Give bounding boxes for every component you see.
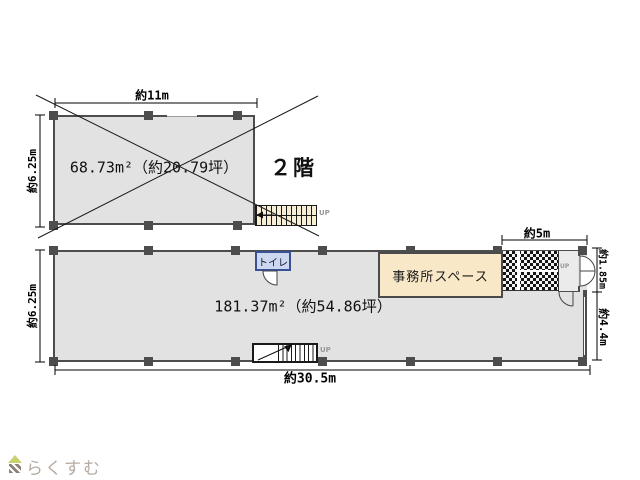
floor2-height-dimension: 約6.25m [24, 149, 40, 193]
entrance-vestibule [558, 251, 578, 291]
column-marker [144, 357, 153, 366]
stairs-mid-line [256, 215, 316, 216]
column-marker [231, 246, 240, 255]
right-bottom-dimension: 約4.4m [596, 308, 612, 346]
floor2-stairs [255, 205, 317, 226]
window-gap [167, 114, 197, 117]
stairwell-hatch [503, 251, 558, 291]
toilet-room: トイレ [255, 251, 291, 271]
column-marker [318, 357, 327, 366]
column-marker [49, 357, 58, 366]
right-top-dimension: 約1.85m [597, 249, 612, 289]
floor1-stairs [252, 343, 318, 363]
floor2-width-dimension: 約11m [135, 87, 169, 104]
floor2-stairs-up-label: UP [319, 209, 330, 217]
window-line [584, 297, 585, 355]
house-roof-icon [8, 455, 22, 463]
hatch-divider [520, 270, 558, 272]
entrance-width-dimension: 約5m [524, 225, 550, 242]
entrance-up-label: UP [560, 263, 569, 270]
column-marker [493, 357, 502, 366]
site-logo: らくすむ [8, 454, 168, 476]
column-marker [231, 357, 240, 366]
column-marker [144, 111, 153, 120]
column-marker [49, 221, 58, 230]
logo-text: らくすむ [26, 454, 102, 479]
column-marker [49, 111, 58, 120]
floor1-width-dimension: 約30.5m [284, 368, 336, 387]
floorplan-canvas: UP 68.73m²（約20.79坪） ２階 約11m 約6.25m トイレ 事… [0, 0, 640, 480]
office-space: 事務所スペース [378, 252, 503, 298]
house-body-icon [9, 464, 21, 473]
floor1-height-dimension: 約6.25m [24, 284, 40, 328]
floor1-stairs-up-label: UP [320, 346, 331, 354]
floor2-area-label: 68.73m²（約20.79坪） [70, 157, 238, 178]
column-marker [406, 357, 415, 366]
column-marker [144, 246, 153, 255]
column-marker [233, 221, 242, 230]
toilet-label: トイレ [258, 254, 288, 269]
column-marker [233, 111, 242, 120]
office-label: 事務所スペース [392, 266, 488, 285]
column-marker [49, 246, 58, 255]
column-marker [144, 221, 153, 230]
column-marker [318, 246, 327, 255]
floor2-name-label: ２階 [270, 152, 316, 182]
stairs-treads [278, 345, 318, 361]
floor1-area-label: 181.37m²（約54.86坪） [214, 296, 391, 317]
